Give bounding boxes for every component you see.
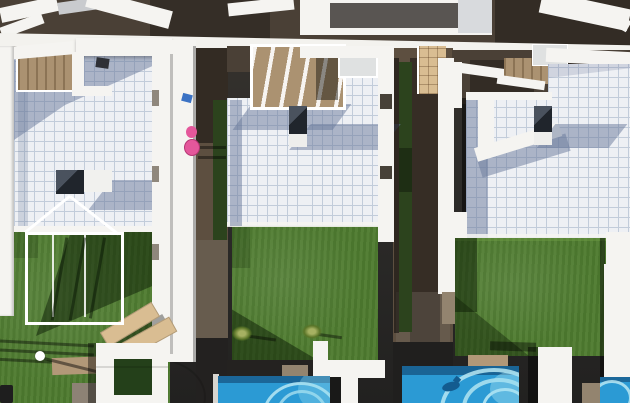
wall-seam bbox=[170, 54, 173, 354]
middle-roof-shadow bbox=[230, 100, 242, 226]
skylight bbox=[534, 106, 552, 134]
wall-shadow bbox=[528, 347, 538, 403]
wall-notch bbox=[152, 166, 159, 182]
left-parapet-inner bbox=[72, 86, 112, 96]
right-turf-lit-edge bbox=[455, 238, 613, 241]
middle-pool bbox=[218, 376, 330, 403]
middle-right-parapet bbox=[378, 46, 394, 242]
right-garden-wall bbox=[538, 347, 572, 403]
corner-pool bbox=[600, 377, 630, 403]
hedge bbox=[399, 62, 412, 332]
enclosure-seam bbox=[96, 366, 168, 368]
right-boundary-wall bbox=[606, 232, 630, 264]
alley-paving bbox=[196, 240, 228, 340]
wall-notch bbox=[380, 94, 392, 109]
parapet-east-shadow bbox=[394, 58, 399, 333]
alley-step-shadow bbox=[198, 156, 226, 159]
skylight bbox=[289, 106, 307, 134]
palm-shrub bbox=[232, 326, 252, 341]
wall-notch bbox=[152, 90, 159, 106]
left-boundary-wall bbox=[0, 46, 14, 316]
aerial-photo-villas: Aerial top-down drone view of three mode… bbox=[0, 0, 630, 403]
hedge-shadow bbox=[399, 148, 412, 192]
paving-patch bbox=[582, 383, 600, 403]
bg-house-roof bbox=[458, 0, 492, 33]
roof-vent bbox=[95, 57, 109, 69]
pool-step-arc bbox=[600, 380, 630, 403]
pergola-frame bbox=[25, 232, 124, 325]
skylight-housing bbox=[534, 132, 552, 145]
middle-garden-wall bbox=[341, 377, 358, 403]
skylight-housing bbox=[289, 134, 307, 147]
hedge bbox=[213, 100, 227, 240]
wall-notch bbox=[380, 166, 392, 179]
pool-step-glow bbox=[490, 372, 519, 403]
pool-step-glow bbox=[298, 376, 330, 403]
pink-float bbox=[184, 139, 200, 156]
alley-step-shadow bbox=[198, 146, 226, 149]
right-pool bbox=[402, 366, 519, 403]
pink-float bbox=[186, 126, 197, 138]
palm-shrub bbox=[302, 324, 322, 339]
right-boundary-wall bbox=[604, 264, 630, 384]
enclosure-inner-turf bbox=[114, 359, 152, 395]
wall-notch bbox=[152, 244, 159, 260]
wall-edge-shadow bbox=[193, 46, 196, 362]
bg-house-courtyard bbox=[330, 3, 462, 28]
middle-turf-shade bbox=[232, 224, 250, 268]
middle-roof-bottom-parapet bbox=[227, 222, 378, 227]
garden-lamp bbox=[35, 351, 45, 361]
waste-bin bbox=[0, 385, 13, 403]
skylight bbox=[56, 170, 84, 194]
skylight-housing bbox=[84, 170, 112, 192]
paving-patch bbox=[442, 292, 455, 324]
